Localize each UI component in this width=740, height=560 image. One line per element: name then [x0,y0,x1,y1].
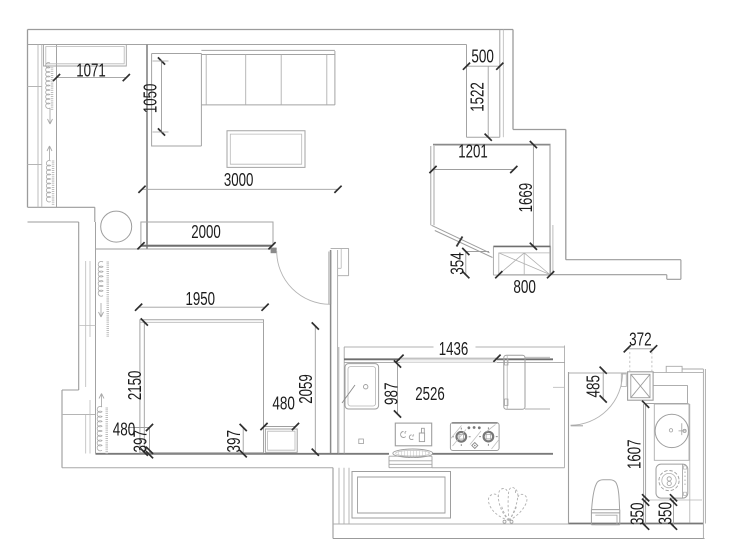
svg-text:3000: 3000 [224,169,254,190]
svg-text:2150: 2150 [124,371,145,401]
svg-text:1522: 1522 [467,82,488,112]
svg-text:1436: 1436 [439,338,469,359]
svg-text:397: 397 [129,430,150,453]
svg-text:987: 987 [380,383,401,406]
svg-text:800: 800 [513,276,536,297]
svg-text:1201: 1201 [458,141,488,162]
svg-text:500: 500 [471,46,494,67]
svg-text:485: 485 [582,375,603,398]
svg-text:2526: 2526 [415,383,445,404]
svg-text:1607: 1607 [624,440,645,470]
svg-text:1669: 1669 [515,183,536,213]
svg-text:350: 350 [654,502,675,525]
svg-text:1071: 1071 [76,60,106,81]
svg-text:354: 354 [447,252,468,275]
svg-text:1950: 1950 [185,288,215,309]
svg-text:480: 480 [272,393,295,414]
svg-text:350: 350 [626,503,647,526]
svg-text:2000: 2000 [191,221,221,242]
svg-text:2059: 2059 [295,374,316,404]
svg-text:372: 372 [629,329,652,350]
svg-text:397: 397 [223,430,244,453]
svg-text:1050: 1050 [140,84,161,114]
